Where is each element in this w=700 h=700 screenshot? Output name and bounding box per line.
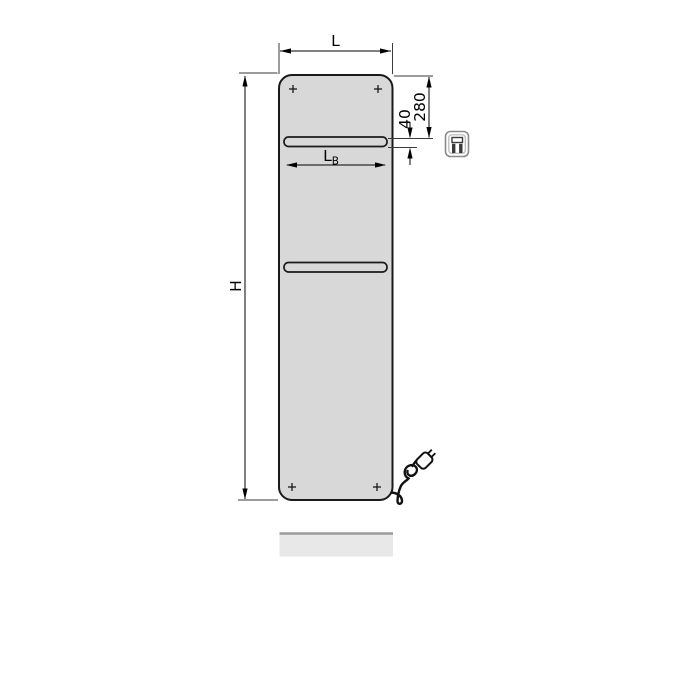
power-plug-icon [415, 447, 438, 470]
radiator-panel [279, 75, 393, 500]
dimension-bar-offset-40: 40 [396, 109, 414, 165]
plug-body [415, 451, 434, 470]
width-label: L [331, 32, 340, 50]
diagram-canvas: L H 280 40 LB [0, 0, 700, 700]
arrowhead-left-icon [280, 48, 291, 53]
radiator-technical-drawing: L H 280 40 LB [0, 0, 700, 700]
electric-product-pictogram-icon [446, 132, 469, 157]
power-cable [392, 465, 417, 504]
arrowhead-up-icon [407, 148, 412, 159]
plug-prong-right [432, 453, 436, 457]
arrowhead-down-icon [426, 127, 431, 138]
dimension-overall-height: H [227, 76, 248, 500]
arrowhead-up-icon [242, 76, 247, 87]
plug-prong-left [428, 450, 432, 454]
bar-offset-value: 40 [396, 109, 414, 129]
pictogram-display [452, 138, 463, 143]
arrowhead-up-icon [426, 77, 431, 88]
dimension-overall-width: L [280, 32, 391, 54]
height-label: H [227, 280, 245, 292]
pictogram-bar-right [459, 144, 462, 153]
towel-bar-lower [284, 263, 387, 273]
power-cable-assembly [392, 447, 438, 504]
pictogram-bar-left [452, 144, 455, 153]
arrowhead-right-icon [380, 48, 391, 53]
arrowhead-down-icon [242, 489, 247, 500]
reflection-body [280, 534, 394, 557]
bar-width-label-sub: B [332, 156, 339, 168]
towel-bar-upper [284, 137, 387, 147]
floor-reflection [280, 534, 394, 557]
dimension-top-offset-280: 280 [411, 77, 432, 139]
